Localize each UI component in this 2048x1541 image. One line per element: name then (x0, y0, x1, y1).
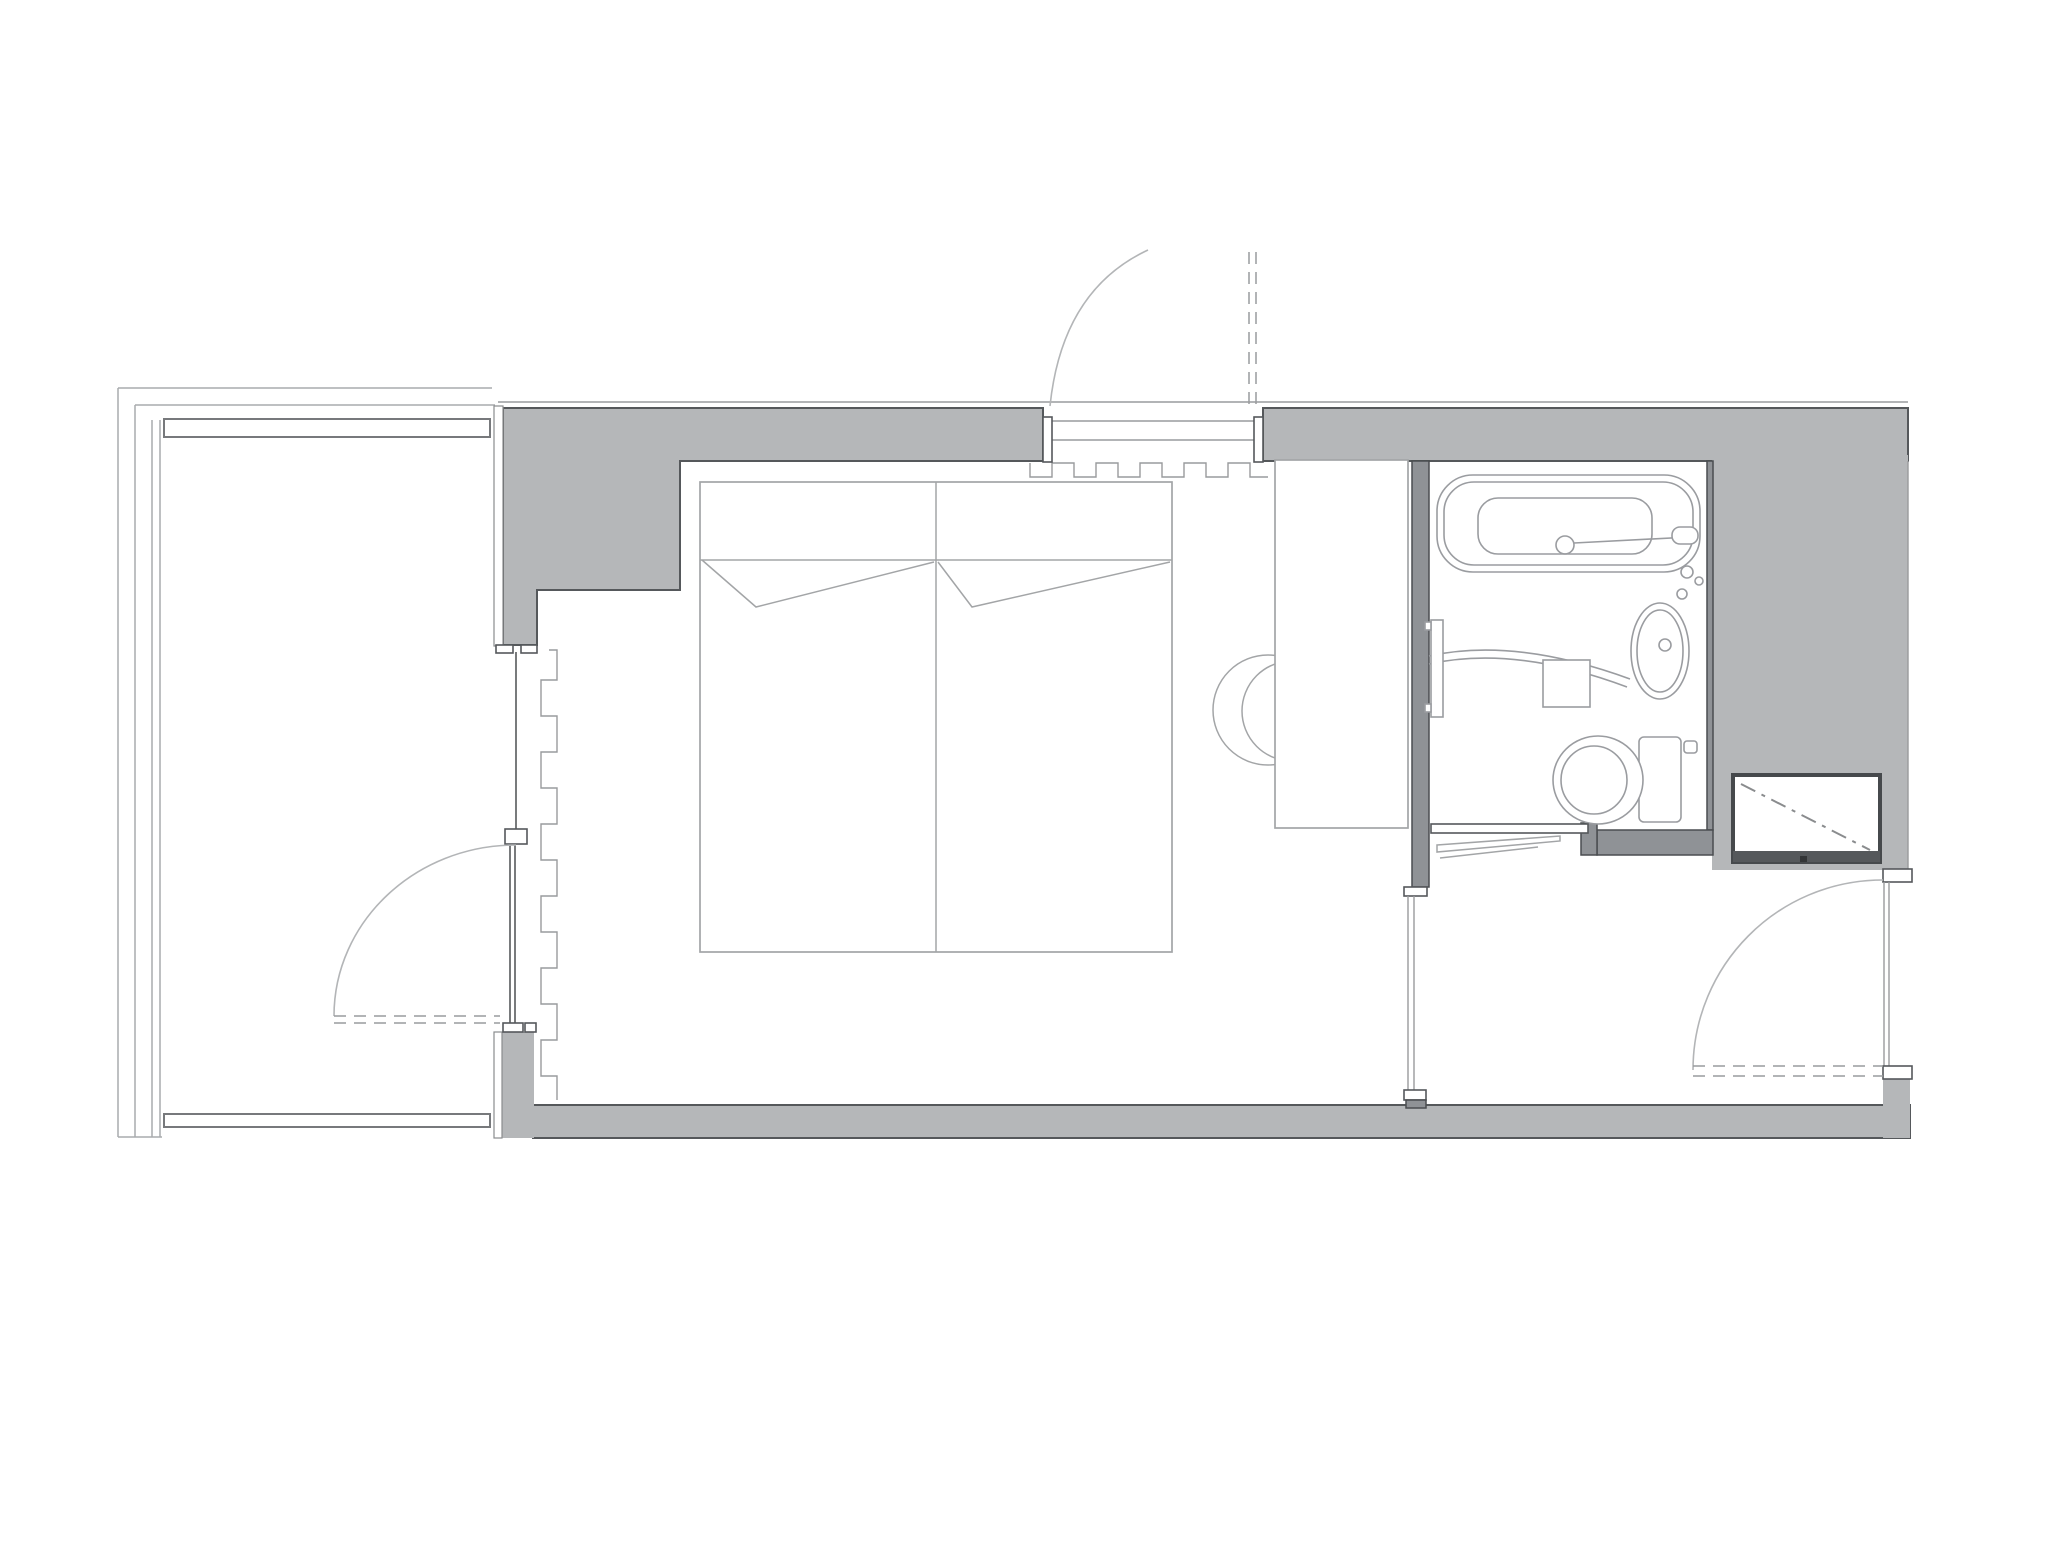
sliding-bathroom-door (1431, 824, 1588, 858)
left-wall-edge-bottom (494, 1032, 502, 1138)
balcony (118, 388, 495, 1137)
closet-latch (1800, 856, 1807, 862)
toilet-flush-button (1684, 741, 1697, 753)
balcony-window (334, 645, 537, 1032)
vanity-counter-edge-2 (1429, 658, 1627, 687)
bathtub-drain (1556, 536, 1574, 554)
bottom-wall (533, 1105, 1910, 1138)
toilet-tank (1639, 737, 1681, 822)
entrance-jamb-top (1883, 869, 1912, 882)
partition-cap-bottom (1404, 1090, 1426, 1100)
entry-threshold (1030, 463, 1268, 477)
top-entry-door (1043, 250, 1263, 462)
toilet (1553, 736, 1697, 824)
right-wall-below-door (1883, 1079, 1910, 1138)
entrance-swing-arc (1693, 880, 1883, 1070)
entrance-jamb-bottom (1883, 1066, 1912, 1079)
balcony-top-rail (164, 419, 490, 437)
desk-area (1213, 460, 1408, 828)
main-entrance-door (1693, 869, 1912, 1079)
balcony-door-handle (505, 829, 527, 844)
window-frame-cap-top-2 (521, 645, 537, 653)
bathroom-right-wall (1707, 461, 1713, 830)
twin-bed (700, 482, 1172, 952)
bathroom-door-track (1431, 824, 1588, 833)
window-frame-cap-top-1 (496, 645, 513, 653)
vanity-counter-edge-1 (1429, 650, 1630, 679)
bathroom-left-wall (1412, 461, 1429, 887)
towel-rail (1431, 620, 1443, 717)
bathtub (1437, 475, 1703, 599)
bath-mixer-handle-2 (1695, 577, 1703, 585)
bathroom-door-leaf (1437, 836, 1560, 852)
towel-rail-bracket-bottom (1425, 704, 1431, 712)
balcony-door-swing-arc (334, 845, 516, 1016)
washbasin (1631, 603, 1689, 699)
toilet-bowl (1553, 736, 1643, 824)
window-frame-cap-bottom-2 (525, 1023, 536, 1032)
towel-rail-bracket-top (1425, 622, 1431, 630)
top-door-jamb-left (1043, 417, 1052, 462)
top-door-jamb-right (1254, 417, 1263, 462)
bathtub-spout (1672, 527, 1698, 544)
luggage-closet (1733, 775, 1880, 862)
left-wall-edge-top (494, 406, 503, 646)
washbasin-outer (1631, 603, 1689, 699)
left-wall-lower-pier (502, 1032, 534, 1138)
shelf-box (1543, 660, 1590, 707)
bathtub-outer-rim (1437, 475, 1700, 572)
top-door-swing-arc (1050, 250, 1148, 406)
balcony-bottom-rail (164, 1114, 490, 1127)
top-right-wall (1263, 408, 1908, 461)
bathroom (1425, 475, 1703, 858)
curtain (541, 650, 557, 1100)
bathtub-basin (1478, 498, 1652, 554)
floor-plan-page (0, 0, 2048, 1541)
bathroom-door-leaf-line (1440, 847, 1538, 858)
window-frame-cap-bottom-1 (503, 1023, 523, 1032)
bath-mixer-handle-3 (1677, 589, 1687, 599)
floor-plan-drawing (0, 0, 2048, 1541)
entry-partition (1404, 896, 1426, 1108)
desk-counter (1275, 460, 1408, 828)
partition-stub (1406, 1100, 1426, 1108)
bathroom-bottom-wall (1597, 830, 1713, 855)
bathroom-wall-cap (1404, 887, 1427, 896)
bath-mixer-handle-1 (1681, 566, 1693, 578)
